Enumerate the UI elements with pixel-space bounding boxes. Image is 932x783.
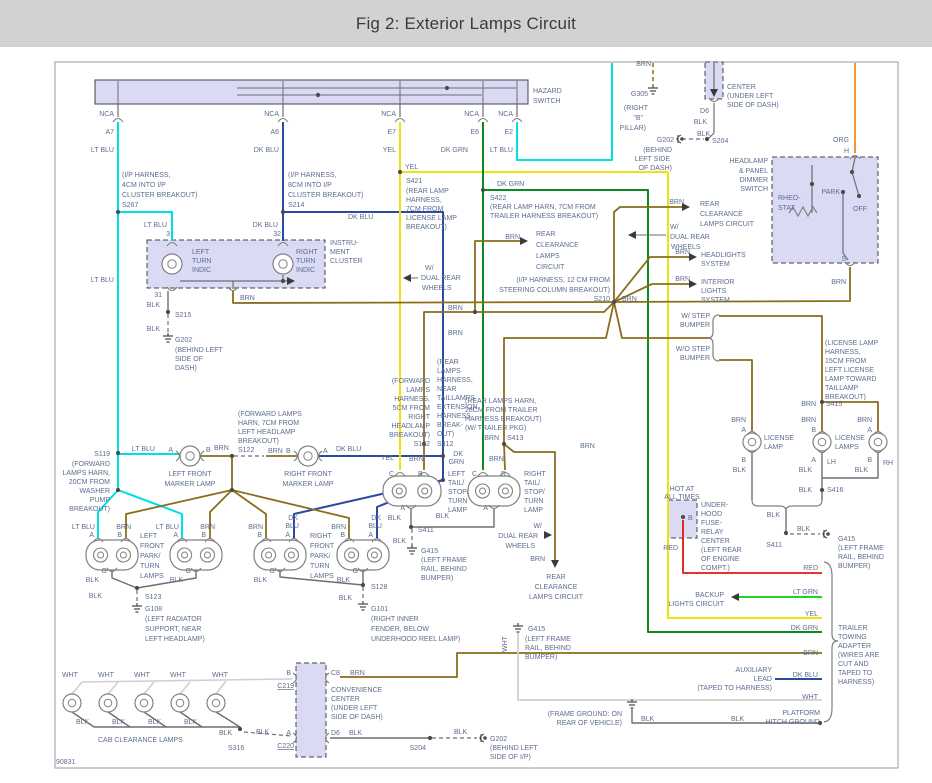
ground-symbol <box>407 545 417 554</box>
label: BUMPER <box>680 355 710 362</box>
label: BLK <box>797 526 811 533</box>
label: RAIL, BEHIND <box>525 645 571 652</box>
label: 20CM FROM <box>69 479 110 486</box>
label: LT BLU <box>72 524 95 531</box>
label: CLUSTER BREAKOUT) <box>122 192 197 199</box>
lamp-bulb <box>99 694 117 712</box>
label: WHT <box>170 672 187 679</box>
label: DK <box>288 515 298 522</box>
label: ALL TIMES <box>664 494 700 501</box>
label: LICENSE <box>764 435 794 442</box>
label: C219 <box>277 683 294 690</box>
label: BRN <box>580 443 595 450</box>
label: DK GRN <box>497 181 524 188</box>
ground-symbol <box>513 623 523 632</box>
label: BREAKOUT) <box>69 506 110 513</box>
label: A7 <box>105 129 114 136</box>
label: MENT <box>330 249 351 256</box>
label: LEFT HEADLAMP) <box>145 636 205 643</box>
label: FRONT <box>310 543 335 550</box>
splice-dot <box>398 170 402 174</box>
lamp-bulb <box>284 548 298 562</box>
label: (REAR <box>437 359 459 366</box>
splice-dot <box>473 310 477 314</box>
label: H <box>844 148 849 155</box>
label: BLK <box>733 467 747 474</box>
wire <box>517 63 612 160</box>
label: G415 <box>528 626 545 633</box>
label: BREAKOUT) <box>389 432 430 439</box>
label: YEL <box>805 611 818 618</box>
label: 4CM INTO I/P <box>122 182 166 189</box>
label: B <box>501 471 506 478</box>
label: A <box>323 448 328 455</box>
label: BRN <box>622 296 637 303</box>
label: BLK <box>697 131 711 138</box>
figure-title-bar: Fig 2: Exterior Lamps Circuit <box>0 0 932 47</box>
lamp-bulb <box>178 548 192 562</box>
label: BLK <box>337 577 351 584</box>
label: 15CM FROM <box>825 358 866 365</box>
label: REAR OF VEHICLE) <box>557 720 622 727</box>
label: B <box>257 532 262 539</box>
wire <box>72 682 82 694</box>
label: BLK <box>767 512 781 519</box>
label: BRN <box>240 295 255 302</box>
label: DK BLU <box>254 147 279 154</box>
figure-title: Fig 2: Exterior Lamps Circuit <box>356 14 576 34</box>
label: BLK <box>112 719 126 726</box>
label: CIRCUIT <box>536 264 565 271</box>
label: B <box>340 532 345 539</box>
label: LEFT <box>192 249 210 256</box>
label: 31 <box>154 292 162 299</box>
label: HEADLIGHTS <box>701 252 746 259</box>
label: 8CM INTO I/P <box>288 182 332 189</box>
label: BUMPER) <box>525 654 557 661</box>
label: RELAY <box>701 529 724 536</box>
label: FRONT <box>140 543 165 550</box>
splice-dot <box>841 190 845 194</box>
lamp-bulb <box>418 484 432 498</box>
lamp-bulb <box>180 446 200 466</box>
label: SUPPORT, NEAR <box>145 626 201 633</box>
label: (RIGHT INNER <box>371 616 419 623</box>
label: RIGHT <box>524 471 547 478</box>
diagram-frame <box>55 62 898 768</box>
label: C220 <box>277 743 294 750</box>
label: DUAL REAR <box>498 533 538 540</box>
label: (REAR LAMP <box>406 188 449 195</box>
label: S122 <box>238 447 254 454</box>
label: (FORWARD LAMPS <box>238 411 302 418</box>
label: TURN <box>192 258 211 265</box>
label: A <box>867 427 872 434</box>
label: SIDE OF <box>175 356 203 363</box>
label: BLK <box>254 577 268 584</box>
ground-connector-dot <box>826 532 830 536</box>
label: YEL <box>405 164 418 171</box>
splice-dot <box>612 300 616 304</box>
label: CLUSTER BREAKOUT) <box>288 192 363 199</box>
label: HARNESS BREAKOUT) <box>465 416 542 423</box>
label: CLEARANCE <box>535 584 578 591</box>
label: YEL <box>381 455 394 462</box>
label: BRN <box>214 445 229 452</box>
label: NEAR <box>437 386 456 393</box>
label: (TAPED TO HARNESS) <box>697 685 772 692</box>
label: LEFT <box>448 471 466 478</box>
splice-dot <box>361 583 365 587</box>
label: CENTER <box>727 84 756 91</box>
splice-dot <box>681 515 685 519</box>
label: S411 <box>766 542 782 549</box>
label: CUT AND <box>838 661 869 668</box>
label: LAMP <box>764 444 783 451</box>
label: 5CM FROM <box>393 405 431 412</box>
label: INDIC <box>296 267 315 274</box>
splice-dot <box>116 488 120 492</box>
label: HEADLAMP <box>729 158 768 165</box>
label: HARNESS, <box>406 197 442 204</box>
label: S210 <box>594 296 610 303</box>
label: RH <box>883 460 893 467</box>
label: W/ STEP <box>681 313 710 320</box>
label: LAMP TOWARD <box>825 376 876 383</box>
splice-dot <box>238 727 242 731</box>
label: PUMP <box>90 497 111 504</box>
label: G <box>102 568 107 575</box>
lamp-bulb <box>392 484 406 498</box>
wire <box>518 633 822 700</box>
label: UNDER- <box>701 502 729 509</box>
label: SWITCH <box>740 186 768 193</box>
label: BRN <box>857 417 872 424</box>
label: COMPT.) <box>701 565 730 572</box>
label: S204 <box>712 138 728 145</box>
label: TAPED TO <box>838 670 873 677</box>
label: A <box>400 505 405 512</box>
label: HEADLAMP <box>391 423 430 430</box>
lamp-bulb <box>367 548 381 562</box>
label: LAMPS <box>536 253 560 260</box>
label: (LEFT FRAME <box>838 545 884 552</box>
splice-dot <box>409 525 413 529</box>
label: S416 <box>827 487 843 494</box>
splice-dot <box>820 400 824 404</box>
label: S316 <box>228 745 244 752</box>
label: BRN <box>803 650 818 657</box>
label: (I/P HARNESS, 12 CM FROM <box>516 277 610 284</box>
label: HARNESS, <box>825 349 861 356</box>
label: D6 <box>331 730 340 737</box>
wire <box>126 490 232 538</box>
lamp-bulb <box>200 548 214 562</box>
label: STAT <box>778 205 796 212</box>
label: (I/P HARNESS, <box>288 172 337 179</box>
lamp-bulb <box>171 694 189 712</box>
label: LIGHTS <box>701 288 727 295</box>
label: A <box>483 505 488 512</box>
label: G415 <box>421 548 438 555</box>
splice-dot <box>784 531 788 535</box>
lamp-bulb <box>63 694 81 712</box>
splice-dot <box>230 454 234 458</box>
label: LAMPS <box>835 444 859 451</box>
label: TURN <box>448 498 467 505</box>
label: BRN <box>489 456 504 463</box>
arrow-icon <box>689 280 697 288</box>
label: FUSE- <box>701 520 723 527</box>
label: DUAL REAR <box>421 275 461 282</box>
label: ORG <box>833 137 849 144</box>
label: SIDE OF DASH) <box>331 714 383 721</box>
label: STEERING COLUMN BREAKOUT) <box>499 287 610 294</box>
label: (LEFT FRAME <box>525 636 571 643</box>
component-box <box>95 80 528 104</box>
label: LH <box>827 459 836 466</box>
label: PILLAR) <box>620 125 646 132</box>
label: (FRAME GROUND: ON <box>548 711 622 718</box>
label: CENTER <box>331 696 360 703</box>
label: SWITCH <box>533 98 561 105</box>
label: S415 <box>826 401 842 408</box>
label: OF DASH) <box>639 165 672 172</box>
lamp-bulb <box>476 484 490 498</box>
label: DK BLU <box>253 222 278 229</box>
label: DK BLU <box>336 446 361 453</box>
label: RIGHT <box>408 414 431 421</box>
label: WHT <box>802 694 819 701</box>
label: G305 <box>631 91 648 98</box>
label: BRN <box>636 61 651 68</box>
label: NCA <box>99 111 114 118</box>
label: FENDER, BELOW <box>371 626 429 633</box>
label: DK GRN <box>441 147 468 154</box>
label: HARNESS) <box>838 679 874 686</box>
splice-dot <box>166 310 170 314</box>
label: LEAD <box>754 676 772 683</box>
connector-arc <box>395 119 405 123</box>
label: CAB CLEARANCE LAMPS <box>98 737 183 744</box>
label: AUXILIARY <box>736 667 773 674</box>
label: DK BLU <box>348 214 373 221</box>
label: TAIL/ <box>524 480 540 487</box>
label: SYSTEM <box>701 297 730 304</box>
label: (W/ TRAILER PKG) <box>465 425 526 432</box>
lamp-bulb <box>273 254 293 274</box>
label: NCA <box>464 111 479 118</box>
label: BLU <box>285 523 299 530</box>
label: S122 <box>414 441 430 448</box>
label: WHEELS <box>422 285 452 292</box>
lamp-bulb <box>207 694 225 712</box>
label: TRAILER HARNESS BREAKOUT) <box>490 213 598 220</box>
label: RIGHT <box>296 249 319 256</box>
ground-symbol <box>358 601 368 610</box>
splice-dot <box>316 93 320 97</box>
wire <box>216 712 240 727</box>
label: B <box>688 515 693 522</box>
label: BRN <box>675 276 690 283</box>
splice-dot <box>441 454 445 458</box>
label: A <box>168 447 173 454</box>
label: BLK <box>799 467 813 474</box>
label: BRN <box>350 670 365 677</box>
lamp-bulb <box>345 548 359 562</box>
label: BLK <box>86 577 100 584</box>
label: LAMPS <box>437 368 461 375</box>
label: (LEFT RADIATOR <box>145 616 202 623</box>
label: WHT <box>98 672 115 679</box>
label: GRN <box>448 459 464 466</box>
label: PARK/ <box>140 553 161 560</box>
label: LT BLU <box>132 446 155 453</box>
label: LT BLU <box>490 147 513 154</box>
splice-dot <box>441 478 445 482</box>
label: W/ <box>670 224 679 231</box>
label: BREAK- <box>437 422 464 429</box>
label: TRAILER <box>838 625 868 632</box>
label: RAIL, BEHIND <box>838 554 884 561</box>
label: ADAPTER <box>838 643 871 650</box>
label: BLK <box>147 326 161 333</box>
wire <box>108 682 118 694</box>
wire <box>112 570 137 588</box>
label: G202 <box>175 337 192 344</box>
wire <box>180 682 190 694</box>
label: CENTER <box>701 538 730 545</box>
label: BRN <box>200 524 215 531</box>
label: HARNESS, <box>437 377 473 384</box>
label: BRN <box>530 556 545 563</box>
label: STOP/ <box>524 489 545 496</box>
label: W/ <box>533 523 542 530</box>
label: BLK <box>799 487 813 494</box>
label: LAMPS HARN, <box>63 470 111 477</box>
label: SIDE OF I/P) <box>490 754 531 761</box>
label: B <box>206 447 211 454</box>
label: CLEARANCE <box>700 211 743 218</box>
label: MARKER LAMP <box>283 481 334 488</box>
ground-symbol <box>163 333 173 342</box>
label: BRN <box>268 448 283 455</box>
label: TURN <box>140 563 159 570</box>
label: (LICENSE LAMP <box>825 340 879 347</box>
label: 28CM FROM TRAILER <box>465 407 538 414</box>
wire <box>719 316 822 402</box>
label: BLK <box>76 719 90 726</box>
lamp-bulb <box>298 446 318 466</box>
lamp-bulb <box>135 694 153 712</box>
label: & PANEL <box>739 168 768 175</box>
splice-dot <box>116 210 120 214</box>
label: TURN <box>310 563 329 570</box>
label: LEFT LICENSE <box>825 367 874 374</box>
splice-dot <box>820 488 824 492</box>
label: WHT <box>502 635 509 652</box>
label: BRN <box>484 435 499 442</box>
splice-dot <box>135 586 139 590</box>
label: INSTRU- <box>330 240 359 247</box>
label: (UNDER LEFT <box>331 705 378 712</box>
label: BLK <box>731 716 745 723</box>
label: S <box>841 256 846 263</box>
arrow-icon <box>689 253 697 261</box>
label: BUMPER) <box>838 563 870 570</box>
label: RED <box>803 565 818 572</box>
label: LT BLU <box>91 277 114 284</box>
label: DIMMER <box>740 177 768 184</box>
label: BUMPER <box>680 322 710 329</box>
connector-arc <box>278 119 288 123</box>
label: NCA <box>498 111 513 118</box>
label: TURN <box>296 258 315 265</box>
label: LEFT SIDE <box>635 156 671 163</box>
wire <box>614 302 711 338</box>
label: SYSTEM <box>701 261 730 268</box>
label: G <box>270 568 275 575</box>
label: (BEHIND LEFT <box>490 745 539 752</box>
label: (UNDER LEFT <box>727 93 774 100</box>
label: BLU <box>368 523 382 530</box>
label: G <box>353 568 358 575</box>
label: BLK <box>436 513 450 520</box>
label: E7 <box>387 129 396 136</box>
label: "B" <box>633 115 643 122</box>
label: BLK <box>148 719 162 726</box>
label: HARNESS, <box>394 396 430 403</box>
label: W/ <box>425 265 434 272</box>
connector-arc <box>113 119 123 123</box>
label: E2 <box>504 129 513 136</box>
label: BRN <box>448 330 463 337</box>
label: G202 <box>490 736 507 743</box>
label: S204 <box>410 745 426 752</box>
label: BUMPER) <box>421 575 453 582</box>
ground-symbol <box>132 603 142 612</box>
label: (BEHIND <box>643 147 672 154</box>
label: 90831 <box>56 759 76 766</box>
label: STOP/ <box>448 489 469 496</box>
label: A <box>368 532 373 539</box>
label: RAIL, BEHIND <box>421 566 467 573</box>
label: NCA <box>264 111 279 118</box>
label: 3 <box>166 231 170 238</box>
label: B <box>286 670 291 677</box>
label: UNDERHOOD REEL LAMP) <box>371 636 460 643</box>
splice-dot <box>281 279 285 283</box>
splice-dot <box>502 442 506 446</box>
label: TAIL/ <box>448 480 464 487</box>
label: WHT <box>62 672 79 679</box>
label: DK BLU <box>793 672 818 679</box>
wire <box>144 682 154 694</box>
splice-dot <box>810 182 814 186</box>
label: S413 <box>507 435 523 442</box>
label: DUAL REAR <box>670 234 710 241</box>
label: A <box>741 427 746 434</box>
label: BRN <box>831 279 846 286</box>
label: LEFT <box>140 533 158 540</box>
label: C <box>472 471 477 478</box>
label: S421 <box>406 178 422 185</box>
label: REAR <box>536 231 555 238</box>
lamp-bulb <box>162 254 182 274</box>
label: S214 <box>288 202 304 209</box>
label: PARK <box>821 189 840 196</box>
label: C <box>389 471 394 478</box>
